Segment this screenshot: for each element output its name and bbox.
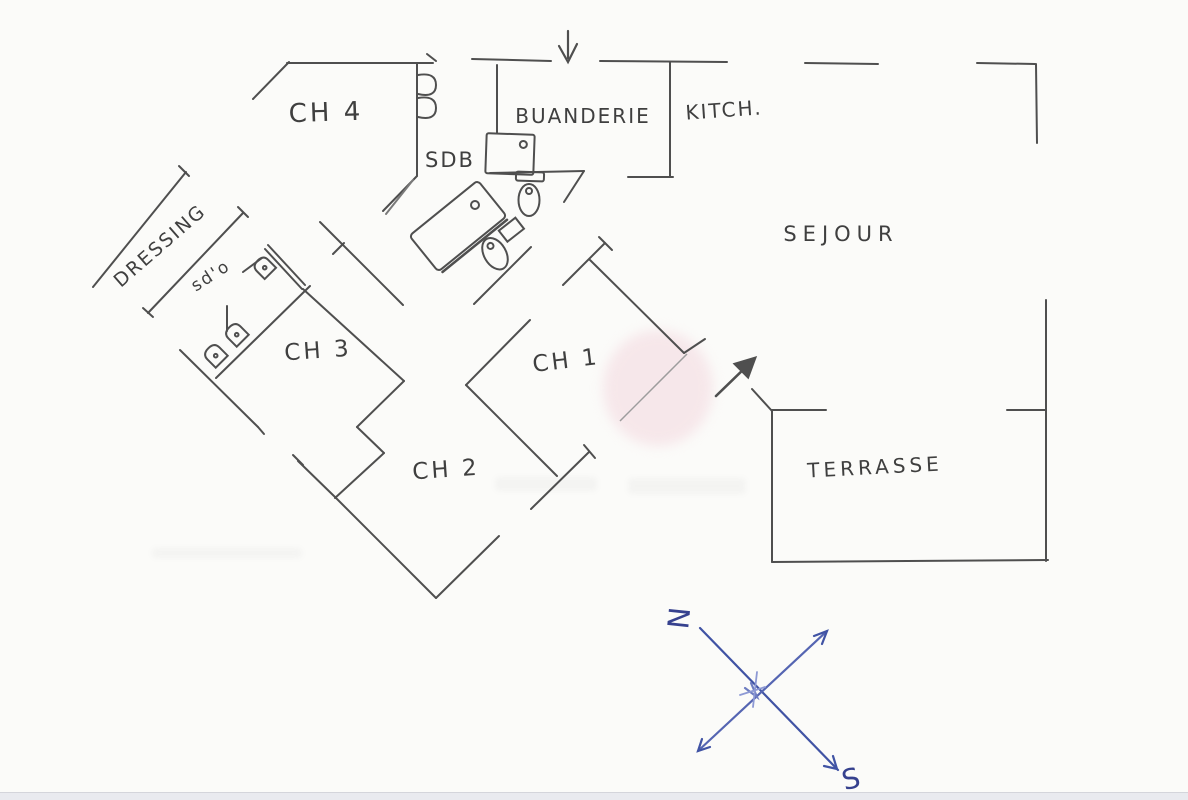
toilet-cistern-icon <box>499 218 524 242</box>
toilet-icon <box>516 172 544 216</box>
bathtub-drain-icon <box>471 201 479 209</box>
room-label-ch2: CH 2 <box>412 455 481 486</box>
sink-icon <box>202 342 227 367</box>
entry-door-leaf-line <box>620 354 687 421</box>
room-label-sejour: SEJOUR <box>783 222 898 246</box>
closet-door-icon <box>418 97 436 118</box>
washing-machine-icon <box>485 133 534 175</box>
entrance-arrow-top <box>559 31 577 62</box>
screenshot-bottom-bar <box>0 792 1188 800</box>
fixtures-layer <box>202 74 544 367</box>
closet-door-icon <box>418 74 436 95</box>
floor-plan-canvas: CH 4 SDB BUANDERIE KITCH. SEJOUR DRESSIN… <box>0 0 1188 800</box>
room-label-buanderie: BUANDERIE <box>515 104 650 128</box>
room-label-ch3: CH 3 <box>284 336 353 367</box>
room-label-sdb: SDB <box>425 148 475 172</box>
compass-north-label: N <box>660 605 696 630</box>
entrance-arrow-main <box>716 358 755 396</box>
compass-rose <box>698 628 838 770</box>
bathtub-icon <box>409 180 508 273</box>
walls-layer <box>93 54 1048 598</box>
toilet-icon <box>252 255 276 279</box>
room-label-ch4: CH 4 <box>288 97 364 130</box>
